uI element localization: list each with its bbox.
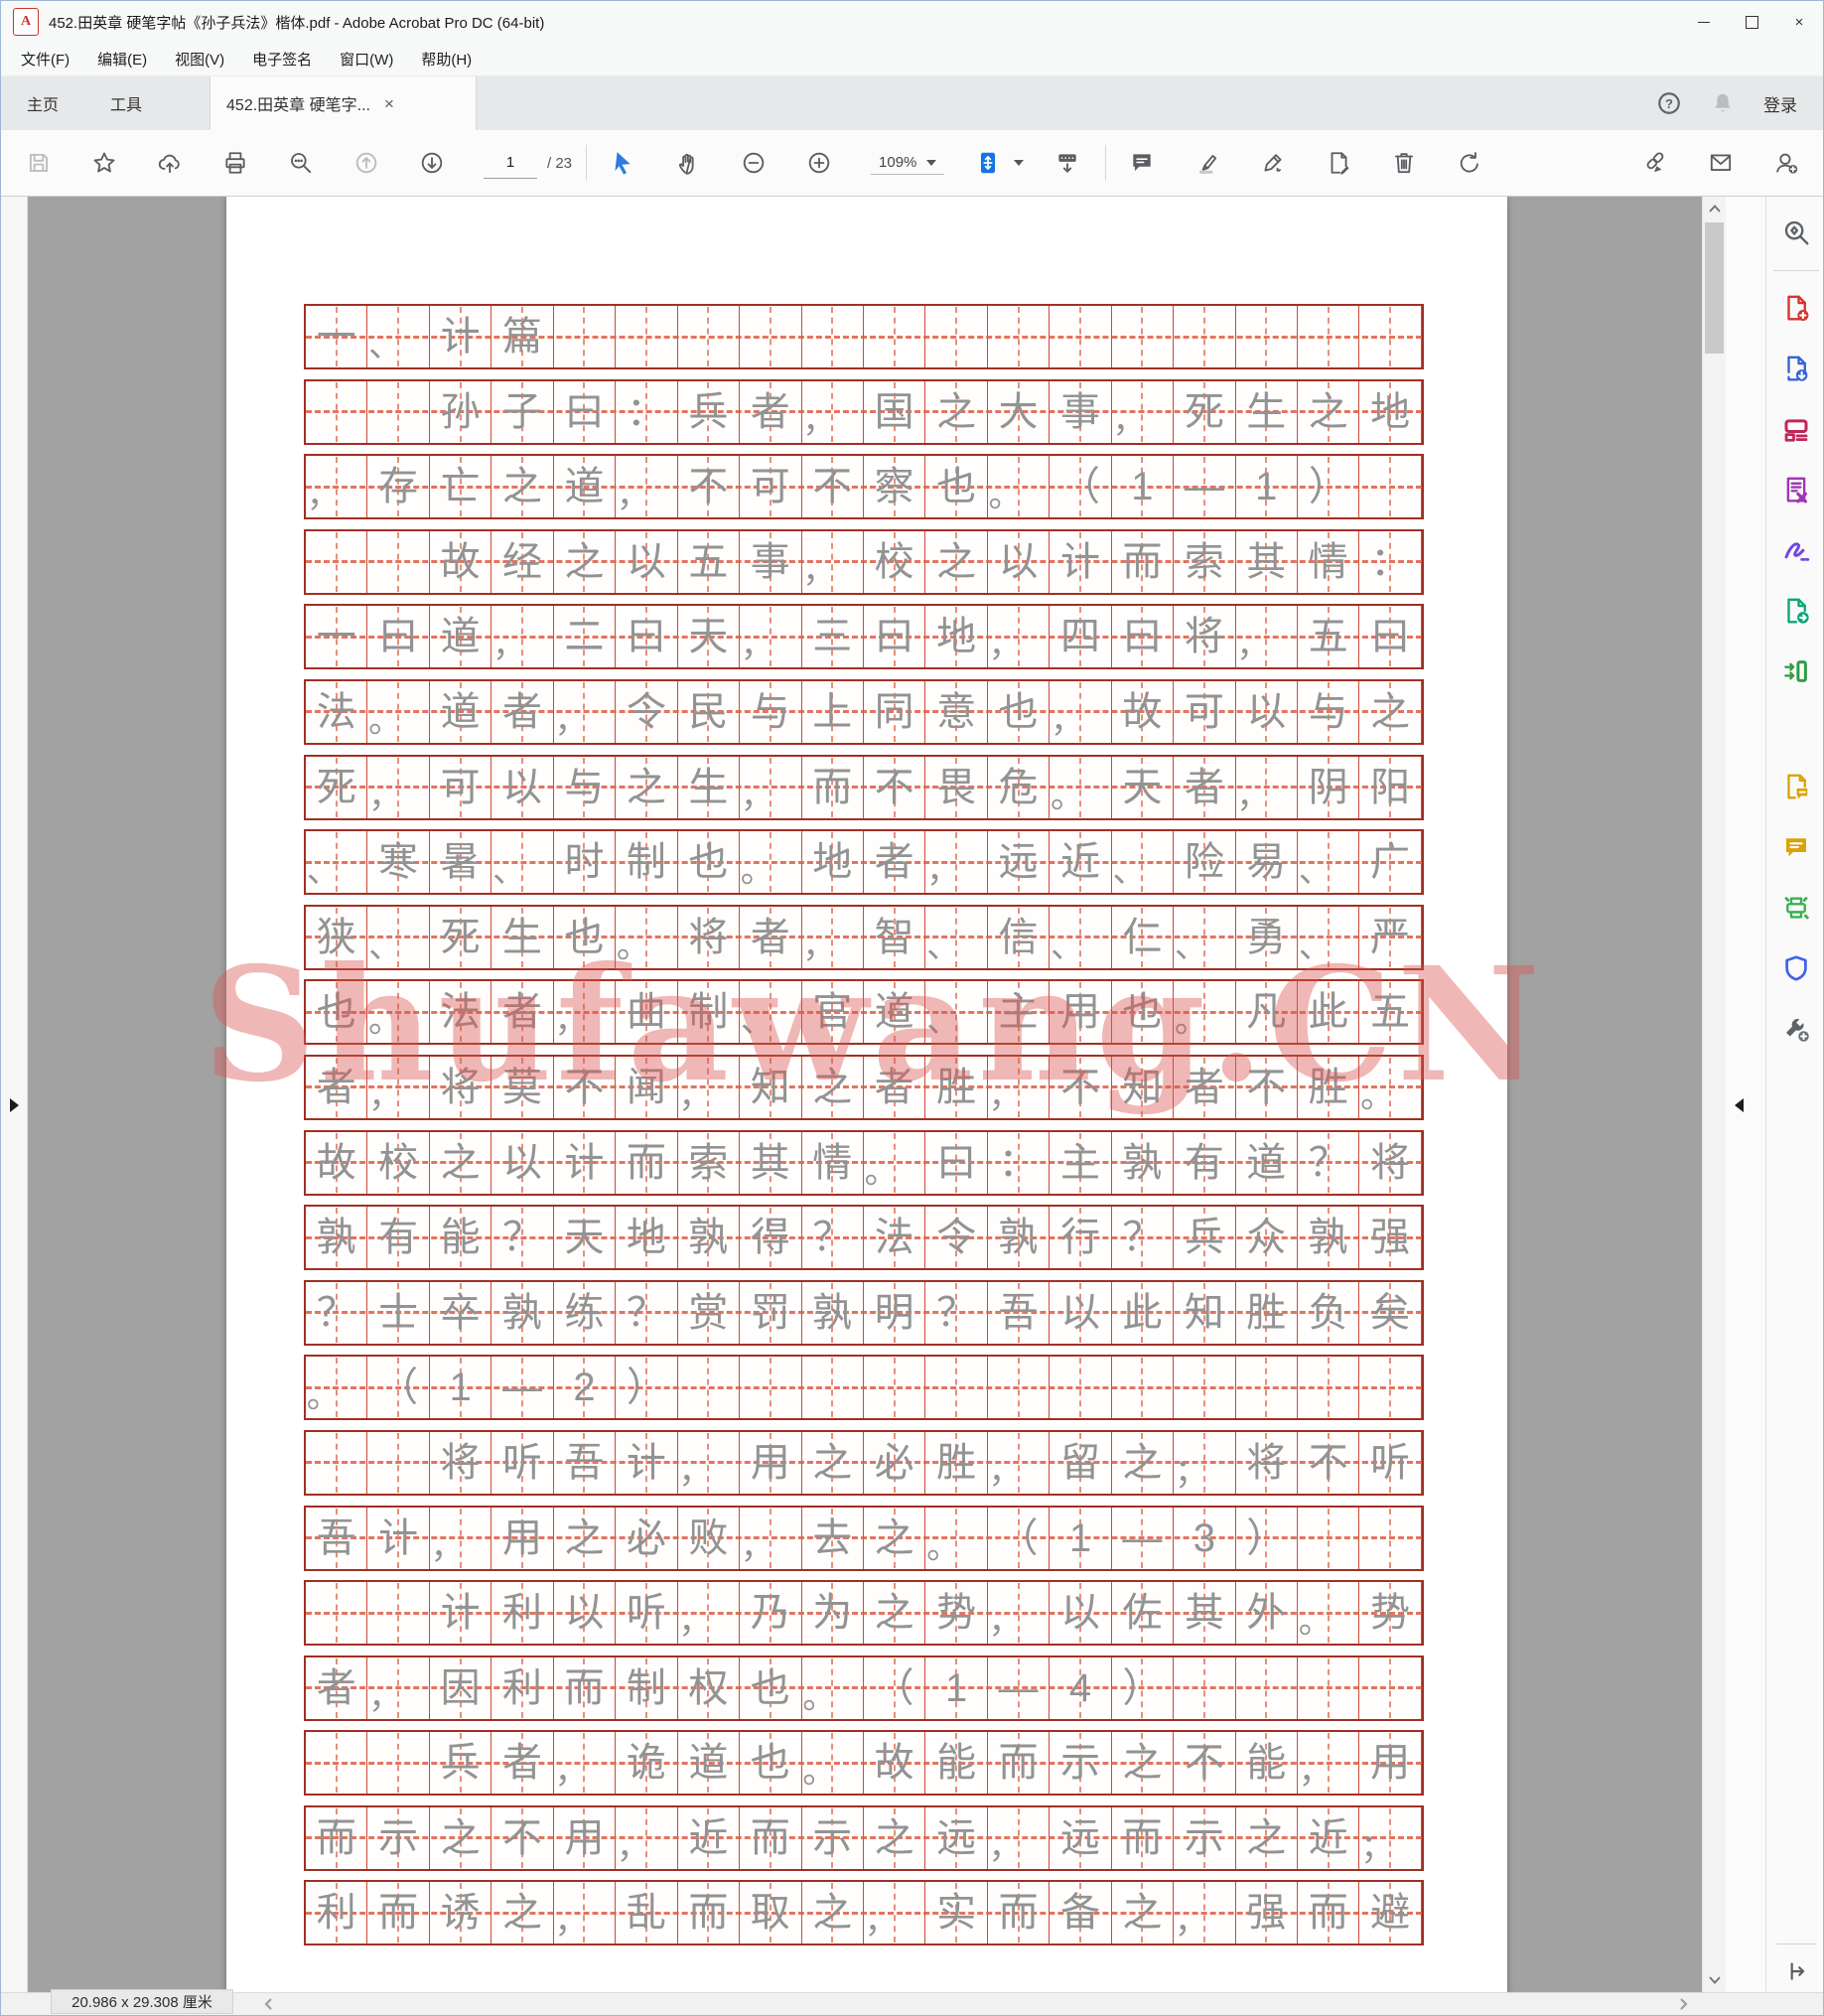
grid-row: 孰有能？天地孰得？法令孰行？兵众孰强 [304,1205,1424,1270]
handwritten-character: 严 [1370,918,1410,957]
handwritten-character: 一 [317,317,356,357]
handwritten-character: 而 [1122,542,1162,582]
save-icon[interactable] [25,150,52,177]
hand-pan-icon[interactable] [674,150,701,177]
handwritten-character: 上 [812,692,852,732]
collapse-tools-pane-icon[interactable] [1735,1098,1744,1112]
sign-pen-icon[interactable] [1259,150,1286,177]
print-icon[interactable] [221,150,248,177]
handwritten-character: 存 [378,467,418,506]
handwritten-character: ， [678,1080,712,1113]
handwritten-character: 而 [751,1818,790,1858]
handwritten-character: 、 [492,854,526,888]
handwritten-character: 1 [1131,467,1153,506]
handwritten-character: ） [627,1368,666,1407]
zoom-out-icon[interactable] [740,150,767,177]
handwritten-character: 不 [875,768,914,807]
handwritten-character: 而 [812,768,852,807]
handwritten-character: ， [802,554,836,588]
handwritten-character: 知 [751,1068,790,1107]
comment-icon[interactable] [1128,150,1155,177]
handwritten-character: 死 [1185,392,1224,432]
handwritten-character: ？ [936,1293,976,1333]
handwritten-character: 五 [1370,992,1410,1032]
handwritten-character: 天 [564,1218,604,1257]
handwritten-character: 近 [1309,1818,1348,1858]
handwritten-character: 士 [378,1293,418,1333]
horizontal-scrollbar[interactable] [1,1992,1823,2015]
handwritten-character: 索 [1185,542,1224,582]
title-bar: A 452.田英章 硬笔字帖《孙子兵法》楷体.pdf - Adobe Acrob… [1,1,1823,43]
handwritten-character: 、 [368,329,402,362]
handwritten-character: 子 [502,392,542,432]
handwritten-character: 同 [875,692,914,732]
grid-row: 一、计篇 [304,304,1424,369]
handwritten-character: 1 [1069,1518,1091,1558]
handwritten-character: ， [1175,1905,1208,1939]
create-pdf-icon[interactable] [1781,293,1811,323]
handwritten-character: ； [1175,1455,1208,1489]
add-user-icon[interactable] [1772,150,1799,177]
handwritten-character: ； [1360,1830,1394,1864]
handwritten-character: 死 [317,768,356,807]
handwritten-character: 道 [688,1743,728,1783]
handwritten-character: 以 [502,768,542,807]
handwritten-character: 将 [441,1068,481,1107]
handwritten-character: ？ [502,1218,542,1257]
handwritten-character: 者 [875,842,914,882]
handwritten-character: 。 [1299,1605,1333,1639]
handwritten-character: ， [741,780,774,813]
handwritten-character: 曰 [936,1143,976,1183]
handwritten-character: ， [368,1680,402,1714]
handwritten-character: 取 [751,1893,790,1933]
handwritten-character: 之 [441,1143,481,1183]
help-icon[interactable]: ? [1656,90,1682,116]
handwritten-character: 易 [1246,842,1286,882]
grid-row: 者，将莫不闻，知之者胜，不知者不胜。 [304,1055,1424,1120]
zoom-in-icon[interactable] [805,150,832,177]
handwritten-character: 备 [1060,1893,1100,1933]
expand-nav-pane-icon[interactable] [10,1098,19,1112]
handwritten-character: 知 [1185,1293,1224,1333]
handwritten-character: 而 [317,1818,356,1858]
grid-row: 利而诱之，乱而取之，实而备之，强而避 [304,1880,1424,1945]
handwritten-character: 明 [875,1293,914,1333]
handwritten-character: 、 [926,930,960,963]
handwritten-character: 地 [627,1218,666,1257]
handwritten-character: 察 [875,467,914,506]
handwritten-character: 、 [307,854,341,888]
handwritten-character: 矣 [1370,1293,1410,1333]
grid-row: 吾计，用之必败，去之。（1—3） [304,1506,1424,1571]
handwritten-character: 也 [1122,992,1162,1032]
handwritten-character: 近 [1060,842,1100,882]
handwritten-character: 道 [441,692,481,732]
grid-row: 法。道者，令民与上同意也，故可以与之 [304,679,1424,745]
handwritten-character: 其 [751,1143,790,1183]
handwritten-character: 胜 [936,1443,976,1483]
handwritten-character: 之 [502,467,542,506]
handwritten-character: 校 [378,1143,418,1183]
handwritten-character: 。 [802,1755,836,1789]
handwritten-character: 者 [502,992,542,1032]
handwritten-character: 事 [1060,392,1100,432]
handwritten-character: 远 [999,842,1039,882]
handwritten-character: ， [1299,1755,1333,1789]
handwritten-character: 也 [564,918,604,957]
handwritten-character: 得 [751,1218,790,1257]
handwritten-character: 以 [627,542,666,582]
vertical-scrollbar[interactable] [1702,197,1726,1992]
handwritten-character: 凡 [1246,992,1286,1032]
menu-edit[interactable]: 编辑(E) [83,49,161,70]
handwritten-character: 者 [875,1068,914,1107]
trash-icon[interactable] [1390,150,1417,177]
handwritten-character: ， [989,1830,1023,1864]
handwritten-character: 制 [627,1668,666,1708]
export-pdf-icon[interactable] [1781,354,1811,383]
handwritten-character: 令 [627,692,666,732]
handwritten-character: 势 [1370,1593,1410,1633]
menu-file[interactable]: 文件(F) [7,49,83,70]
handwritten-character: 。 [368,704,402,738]
close-button[interactable]: × [1775,1,1823,43]
handwritten-character: 。 [1051,780,1084,813]
handwritten-character: 不 [688,467,728,506]
handwritten-character: 、 [1051,930,1084,963]
scroll-up-icon[interactable] [1703,197,1726,220]
handwritten-character: 胜 [936,1068,976,1107]
handwritten-character: 国 [875,392,914,432]
handwritten-character: 实 [936,1893,976,1933]
handwritten-character: 孰 [1309,1218,1348,1257]
pdf-page: 一、计篇孙子曰：兵者，国之大事，死生之地，存亡之道，不可不察也。（1—1）故经之… [226,197,1507,1992]
handwritten-character: ？ [317,1293,356,1333]
handwritten-character: 负 [1309,1293,1348,1333]
handwritten-character: ？ [1122,1218,1162,1257]
handwritten-character: 计 [564,1143,604,1183]
handwritten-character: ， [554,704,588,738]
handwritten-character: 事 [751,542,790,582]
grid-row: 而示之不用，近而示之远，远而示之近； [304,1805,1424,1871]
handwritten-character: 听 [502,1443,542,1483]
handwritten-character: 以 [564,1593,604,1633]
share-upload-icon[interactable] [156,150,183,177]
handwritten-character: 将 [1185,617,1224,656]
handwritten-character: 、 [1299,930,1333,963]
scroll-left-icon[interactable] [261,1996,277,2012]
previous-page-icon[interactable] [352,150,379,177]
chevron-down-icon[interactable] [1014,160,1024,166]
grid-row: 孙子曰：兵者，国之大事，死生之地 [304,379,1424,445]
handwritten-character: — [1122,1518,1162,1558]
mail-icon[interactable] [1707,150,1734,177]
handwritten-character: ， [1051,704,1084,738]
handwritten-character: 佐 [1122,1593,1162,1633]
scroll-right-icon[interactable] [1675,1996,1691,2012]
handwritten-character: 1 [1255,467,1277,506]
handwritten-character: 官 [812,992,852,1032]
handwritten-character: ， [617,1830,650,1864]
handwritten-character: — [999,1668,1039,1708]
handwritten-character: ， [802,930,836,963]
page-number-input[interactable] [484,148,537,179]
handwritten-character: 因 [441,1668,481,1708]
calligraphy-grid: 一、计篇孙子曰：兵者，国之大事，死生之地，存亡之道，不可不察也。（1—1）故经之… [304,304,1424,1945]
handwritten-character: 以 [999,542,1039,582]
handwritten-character: 之 [1122,1743,1162,1783]
send-file-icon[interactable] [1781,596,1811,626]
handwritten-character: ， [617,479,650,512]
handwritten-character: 示 [1185,1818,1224,1858]
handwritten-character: ： [627,392,666,432]
handwritten-character: 之 [875,1818,914,1858]
handwritten-character: 曰 [875,617,914,656]
handwritten-character: 1 [945,1668,967,1708]
handwritten-character: ， [989,1605,1023,1639]
handwritten-character: 而 [688,1893,728,1933]
handwritten-character: ： [999,1143,1039,1183]
link-share-icon[interactable] [1641,150,1668,177]
expand-tools-pane-icon[interactable] [1783,1958,1809,1984]
left-panel-rail [1,197,28,1992]
handwritten-character: 、 [368,930,402,963]
grid-row: 兵者，诡道也。故能而示之不能，用 [304,1730,1424,1796]
handwritten-character: 天 [1122,768,1162,807]
edit-pdf-icon[interactable] [1781,414,1811,444]
handwritten-character: ） [1246,1518,1286,1558]
tab-tools[interactable]: 工具 [84,76,168,130]
handwritten-character: 。 [926,1530,960,1564]
handwritten-character: 也 [999,692,1039,732]
handwritten-character: 示 [812,1818,852,1858]
maximize-button[interactable] [1728,1,1775,43]
handwritten-character: ， [554,1755,588,1789]
handwritten-character: 曰 [564,392,604,432]
handwritten-character: 远 [936,1818,976,1858]
stamp-page-icon[interactable] [1325,150,1351,177]
handwritten-character: 不 [564,1068,604,1107]
grid-row: 也。法者，曲制、官道、主用也。凡此五 [304,979,1424,1045]
search-tools-icon[interactable] [1781,217,1811,247]
handwritten-character: 兵 [1185,1218,1224,1257]
handwritten-character: 也 [751,1668,790,1708]
handwritten-character: 用 [1060,992,1100,1032]
notifications-bell-icon[interactable] [1710,90,1736,116]
document-view[interactable]: 一、计篇孙子曰：兵者，国之大事，死生之地，存亡之道，不可不察也。（1—1）故经之… [28,197,1702,1992]
handwritten-character: 时 [564,842,604,882]
handwritten-character: 之 [502,1893,542,1933]
zoom-level-value: 109% [879,154,916,171]
handwritten-character: 之 [1309,392,1348,432]
handwritten-character: 地 [812,842,852,882]
handwritten-character: 五 [688,542,728,582]
handwritten-character: 之 [875,1593,914,1633]
handwritten-character: ， [368,1080,402,1113]
comments-icon[interactable] [1781,832,1811,862]
handwritten-character: 寒 [378,842,418,882]
handwritten-character: 大 [999,392,1039,432]
handwritten-character: ， [741,1530,774,1564]
handwritten-character: 民 [688,692,728,732]
minimize-button[interactable] [1680,1,1728,43]
handwritten-character: 生 [502,918,542,957]
handwritten-character: 。 [802,1680,836,1714]
handwritten-character: 2 [573,1368,595,1407]
handwritten-character: ？ [812,1218,852,1257]
handwritten-character: 留 [1060,1443,1100,1483]
protect-icon[interactable] [1781,953,1811,983]
handwritten-character: 制 [627,842,666,882]
more-tools-icon[interactable] [1781,1014,1811,1044]
handwritten-character: 道 [564,467,604,506]
handwritten-character: 吾 [317,1518,356,1558]
handwritten-character: 制 [688,992,728,1032]
handwritten-character: 情 [812,1143,852,1183]
tools-panel [1765,197,1824,1992]
handwritten-character: 信 [999,918,1039,957]
fit-page-icon[interactable] [974,150,1001,177]
handwritten-character: 孰 [999,1218,1039,1257]
handwritten-character: 道 [1246,1143,1286,1183]
menu-view[interactable]: 视图(V) [161,49,238,70]
handwritten-character: 亡 [441,467,481,506]
handwritten-character: （ [999,1518,1039,1558]
handwritten-character: 、 [741,1004,774,1038]
fill-sign-icon[interactable] [1781,535,1811,565]
handwritten-character: 强 [1246,1893,1286,1933]
handwritten-character: 故 [441,542,481,582]
handwritten-character: 不 [1309,1443,1348,1483]
zoom-level-dropdown[interactable]: 109% [871,151,944,175]
handwritten-character: 能 [936,1743,976,1783]
handwritten-character: 之 [812,1068,852,1107]
handwritten-character: ， [989,629,1023,662]
vertical-scroll-thumb[interactable] [1705,222,1724,354]
handwritten-character: 赏 [688,1293,728,1333]
handwritten-character: ） [1122,1668,1162,1708]
handwritten-character: 也 [688,842,728,882]
handwritten-character: — [1185,467,1224,506]
handwritten-character: 之 [627,768,666,807]
select-cursor-icon[interactable] [609,150,635,177]
page-total-label: / 23 [547,155,572,172]
handwritten-character: 乃 [751,1593,790,1633]
handwritten-character: 与 [564,768,604,807]
tab-document[interactable]: 452.田英章 硬笔字... × [210,76,477,130]
handwritten-character: 曰 [1370,617,1410,656]
tools-pane-gutter [1726,197,1765,1992]
handwritten-character: 以 [1060,1593,1100,1633]
handwritten-character: 兵 [688,392,728,432]
next-page-icon[interactable] [418,150,445,177]
request-signatures-icon[interactable] [1781,475,1811,504]
handwritten-character: 者 [1185,1068,1224,1107]
handwritten-character: ， [1112,404,1146,438]
handwritten-character: （ [1060,467,1100,506]
handwritten-character: 孰 [812,1293,852,1333]
handwritten-character: 四 [1060,617,1100,656]
handwritten-character: 用 [564,1818,604,1858]
handwritten-character: 能 [441,1218,481,1257]
handwritten-character: 将 [441,1443,481,1483]
menu-esign[interactable]: 电子签名 [238,49,326,70]
scroll-down-icon[interactable] [1703,1968,1726,1992]
grid-row: 计利以听，乃为之势，以佐其外。势 [304,1580,1424,1646]
handwritten-character: 不 [1185,1743,1224,1783]
handwritten-character: 与 [1309,692,1348,732]
handwritten-character: 曲 [627,992,666,1032]
menu-window[interactable]: 窗口(W) [326,49,407,70]
handwritten-character: 一 [317,617,356,656]
highlighter-icon[interactable] [1193,150,1220,177]
rotate-icon[interactable] [1456,150,1482,177]
handwritten-character: 道 [875,992,914,1032]
tab-bar: 主页 工具 452.田英章 硬笔字... × ? 登录 [1,76,1823,130]
handwritten-character: 而 [564,1668,604,1708]
handwritten-character: 能 [1246,1743,1286,1783]
combine-files-icon[interactable] [1781,656,1811,686]
send-for-comments-icon[interactable] [1781,772,1811,801]
menu-help[interactable]: 帮助(H) [407,49,486,70]
search-icon[interactable] [287,150,314,177]
handwritten-character: 去 [812,1518,852,1558]
handwritten-character: 远 [1060,1818,1100,1858]
handwritten-character: 以 [1060,1293,1100,1333]
handwritten-character: 示 [1060,1743,1100,1783]
handwritten-character: 险 [1185,842,1224,882]
handwritten-character: 者 [751,392,790,432]
handwritten-character: 不 [1246,1068,1286,1107]
handwritten-character: 曰 [1122,617,1162,656]
handwritten-character: — [502,1368,542,1407]
scan-ocr-icon[interactable] [1781,893,1811,923]
menu-bar: 文件(F) 编辑(E) 视图(V) 电子签名 窗口(W) 帮助(H) [1,43,1823,76]
handwritten-character: 暑 [441,842,481,882]
sign-in-button[interactable]: 登录 [1763,91,1797,116]
handwritten-character: 闻 [627,1068,666,1107]
tab-home[interactable]: 主页 [1,76,84,130]
handwritten-character: 可 [1185,692,1224,732]
handwritten-character: 其 [1185,1593,1224,1633]
grid-row: 。（1—2） [304,1355,1424,1420]
handwritten-character: 者 [1185,768,1224,807]
scrolling-mode-icon[interactable] [1053,150,1080,177]
handwritten-character: ， [554,1004,588,1038]
handwritten-character: ？ [1309,1143,1348,1183]
handwritten-character: 权 [688,1668,728,1708]
star-favorite-icon[interactable] [90,150,117,177]
handwritten-character: 二 [564,617,604,656]
handwritten-character: 胜 [1309,1068,1348,1107]
handwritten-character: 胜 [1246,1293,1286,1333]
handwritten-character: 用 [1370,1743,1410,1783]
handwritten-character: ： [1370,542,1410,582]
handwritten-character: 。 [1175,1004,1208,1038]
handwritten-character: 听 [627,1593,666,1633]
grid-row: ，存亡之道，不可不察也。（1—1） [304,454,1424,519]
close-tab-icon[interactable]: × [384,95,394,112]
grid-row: 、寒暑、时制也。地者，远近、险易、广 [304,829,1424,895]
handwritten-character: 者 [317,1068,356,1107]
handwritten-character: 近 [688,1818,728,1858]
handwritten-character: 地 [936,617,976,656]
handwritten-character: 。 [865,1155,899,1189]
handwritten-character: 计 [627,1443,666,1483]
handwritten-character: 篇 [502,317,542,357]
handwritten-character: 利 [502,1593,542,1633]
